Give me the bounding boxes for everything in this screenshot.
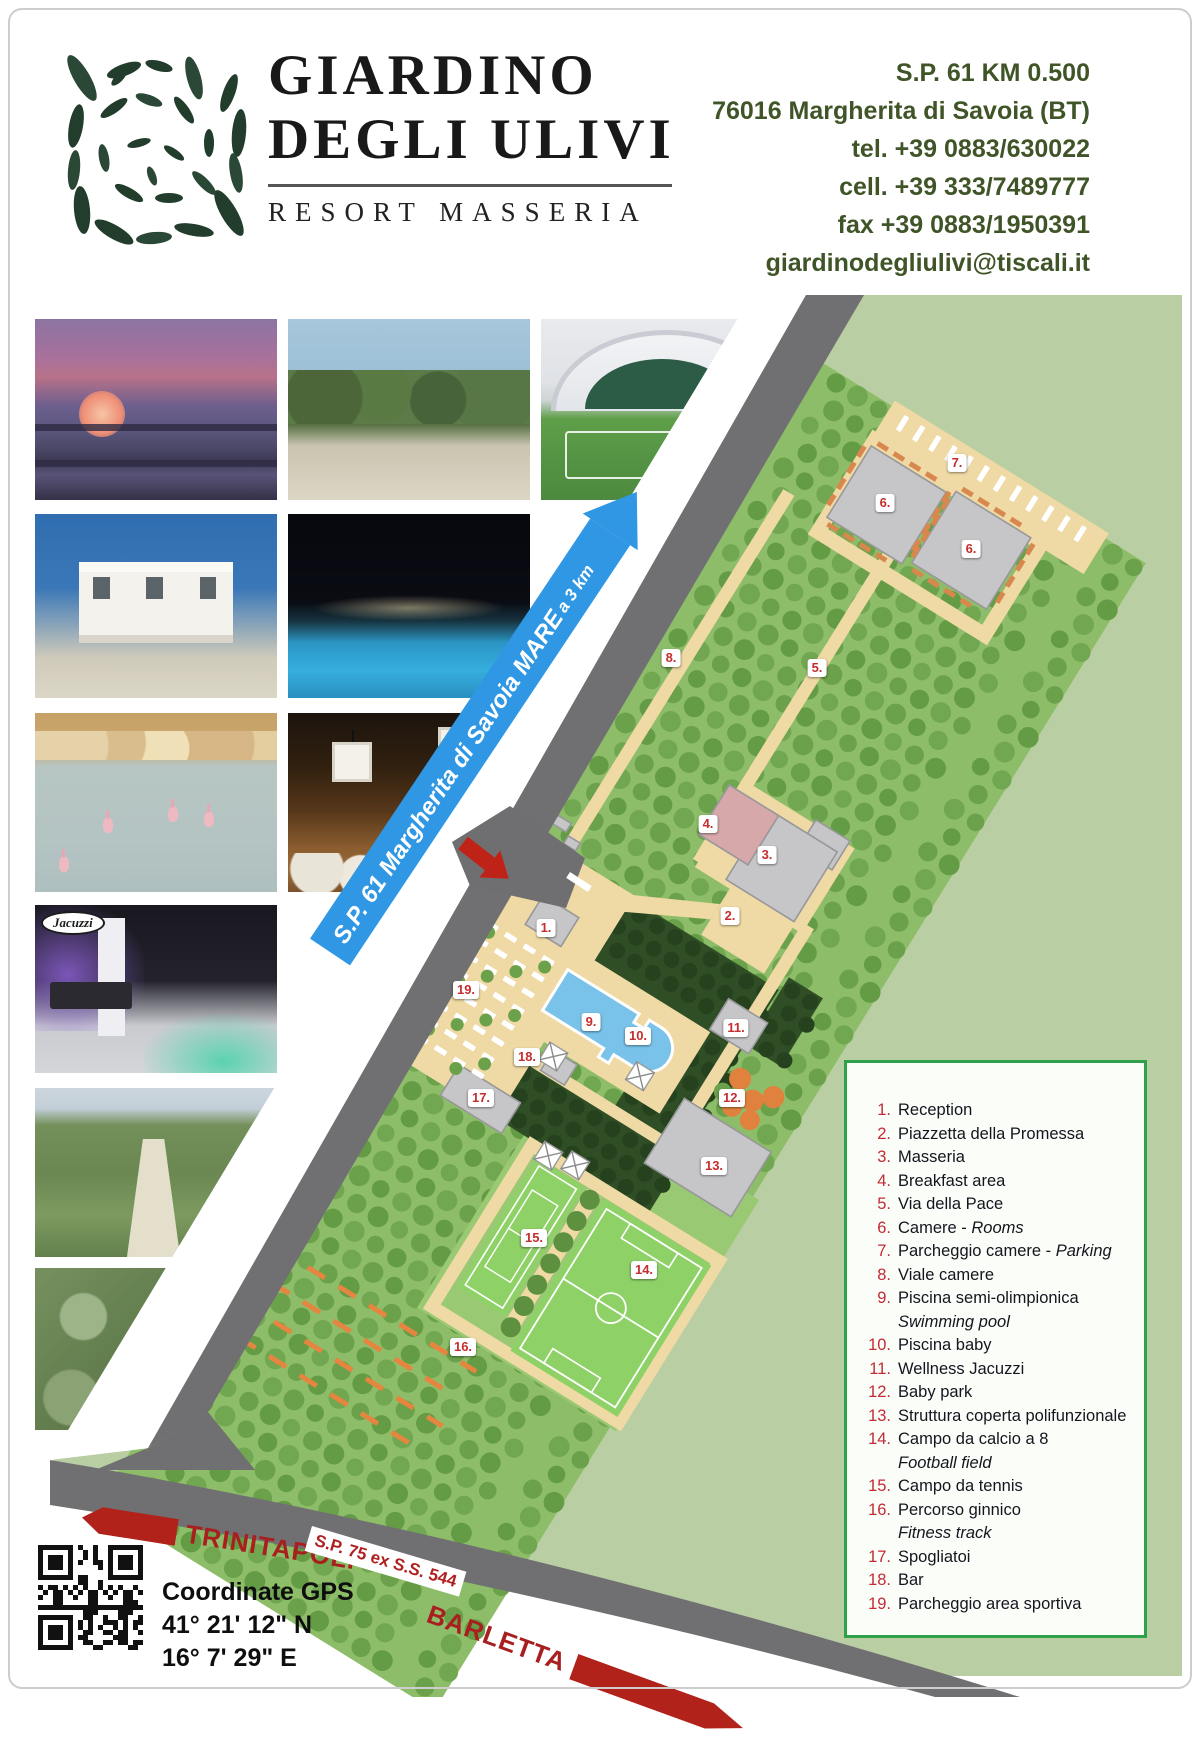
legend-item: 2.Piazzetta della Promessa [859,1123,1136,1147]
legend-item: 14.Campo da calcio a 8 [859,1428,1136,1452]
map-marker-11: 11. [723,1019,748,1037]
gps-title: Coordinate GPS [162,1576,354,1609]
legend-item-sub: Fitness track [898,1522,1136,1546]
legend-item: 13.Struttura coperta polifunzionale [859,1405,1136,1429]
legend-item-sub: Football field [898,1452,1136,1476]
map-marker-4: 4. [699,815,718,833]
map-marker-14: 14. [631,1261,657,1279]
map-marker-19: 19. [453,981,479,999]
legend-item: 17.Spogliatoi [859,1546,1136,1570]
map-marker-8: 8. [662,649,681,667]
map-marker-15: 15. [521,1229,547,1247]
map-marker-12: 12. [719,1089,745,1107]
gps-longitude: 16° 7' 29" E [162,1642,354,1675]
legend-item: 7.Parcheggio camere - Parking [859,1240,1136,1264]
gps-coordinates: Coordinate GPS 41° 21' 12" N 16° 7' 29" … [162,1576,354,1675]
legend-item: 1.Reception [859,1099,1136,1123]
legend-item: 5.Via della Pace [859,1193,1136,1217]
legend-item: 18.Bar [859,1569,1136,1593]
map-marker-17: 17. [468,1089,494,1107]
legend-item: 6.Camere - Rooms [859,1217,1136,1241]
legend-item: 3.Masseria [859,1146,1136,1170]
map-marker-5: 5. [808,659,827,677]
legend-item-sub: Swimming pool [898,1311,1136,1335]
legend-item: 9.Piscina semi-olimpionica [859,1287,1136,1311]
qr-code [38,1545,143,1650]
legend-item: 8.Viale camere [859,1264,1136,1288]
map-marker-6: 6. [876,494,895,512]
map-legend: 1.Reception2.Piazzetta della Promessa3.M… [844,1060,1147,1638]
map-marker-7: 7. [948,454,967,472]
legend-item: 10.Piscina baby [859,1334,1136,1358]
map-marker-13: 13. [701,1157,727,1175]
map-marker-6: 6. [962,540,981,558]
map-marker-2: 2. [721,907,740,925]
map-marker-3: 3. [758,846,777,864]
map-marker-18: 18. [514,1048,540,1066]
map-marker-1: 1. [537,919,556,937]
map-marker-10: 10. [625,1027,651,1045]
legend-item: 11.Wellness Jacuzzi [859,1358,1136,1382]
legend-item: 19.Parcheggio area sportiva [859,1593,1136,1617]
gps-latitude: 41° 21' 12" N [162,1609,354,1642]
legend-item: 12.Baby park [859,1381,1136,1405]
legend-item: 16.Percorso ginnico [859,1499,1136,1523]
legend-item: 15.Campo da tennis [859,1475,1136,1499]
legend-item: 4.Breakfast area [859,1170,1136,1194]
map-marker-16: 16. [450,1338,476,1356]
map-marker-9: 9. [582,1013,601,1031]
